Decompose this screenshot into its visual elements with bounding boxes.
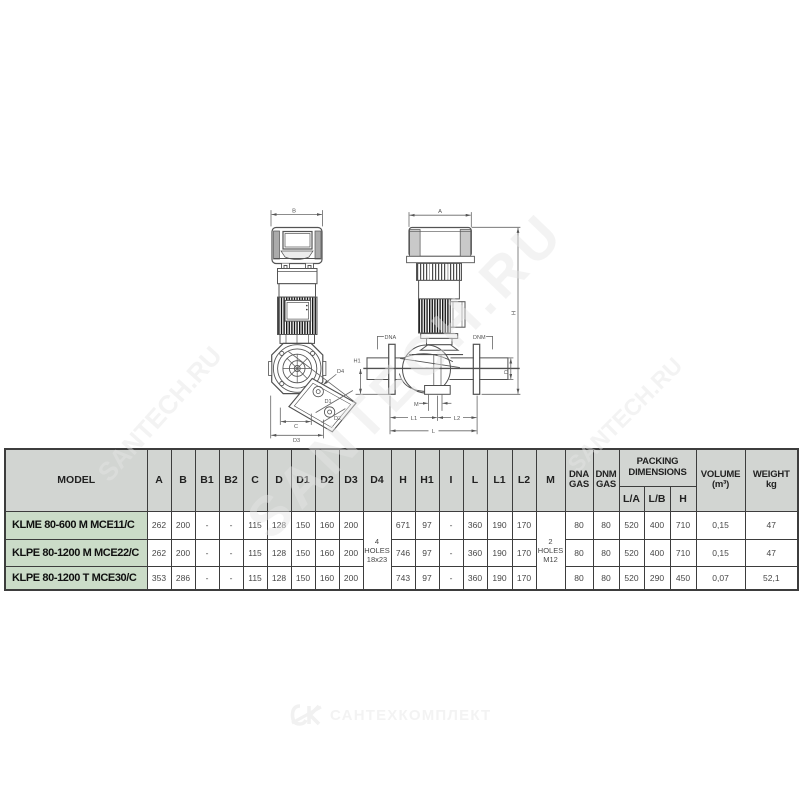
svg-text:D: D: [504, 370, 510, 374]
svg-text:L2: L2: [454, 416, 460, 422]
svg-text:D4: D4: [337, 369, 344, 375]
svg-text:L1: L1: [411, 416, 417, 422]
svg-text:A: A: [438, 209, 442, 215]
svg-text:H1: H1: [354, 359, 361, 365]
svg-text:C: C: [294, 424, 298, 430]
svg-text:H: H: [512, 311, 518, 315]
svg-text:B: B: [292, 209, 296, 215]
